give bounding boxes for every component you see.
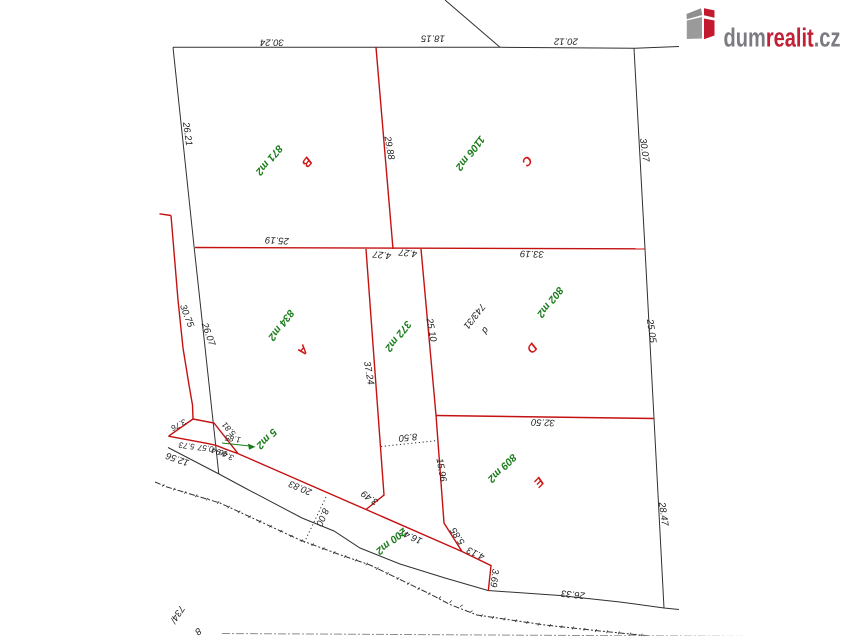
svg-text:4.27: 4.27 [398, 246, 418, 259]
svg-text:20.12: 20.12 [553, 36, 578, 47]
svg-text:8.50: 8.50 [398, 431, 418, 444]
svg-text:4.27: 4.27 [372, 248, 392, 261]
svg-text:32.50: 32.50 [530, 416, 555, 428]
svg-text:dumrealit.cz: dumrealit.cz [724, 25, 841, 53]
svg-text:25.19: 25.19 [264, 234, 290, 246]
svg-text:3.69: 3.69 [487, 568, 500, 588]
svg-text:18.15: 18.15 [420, 33, 444, 44]
svg-text:30.24: 30.24 [260, 37, 284, 48]
svg-text:33.19: 33.19 [519, 248, 544, 260]
